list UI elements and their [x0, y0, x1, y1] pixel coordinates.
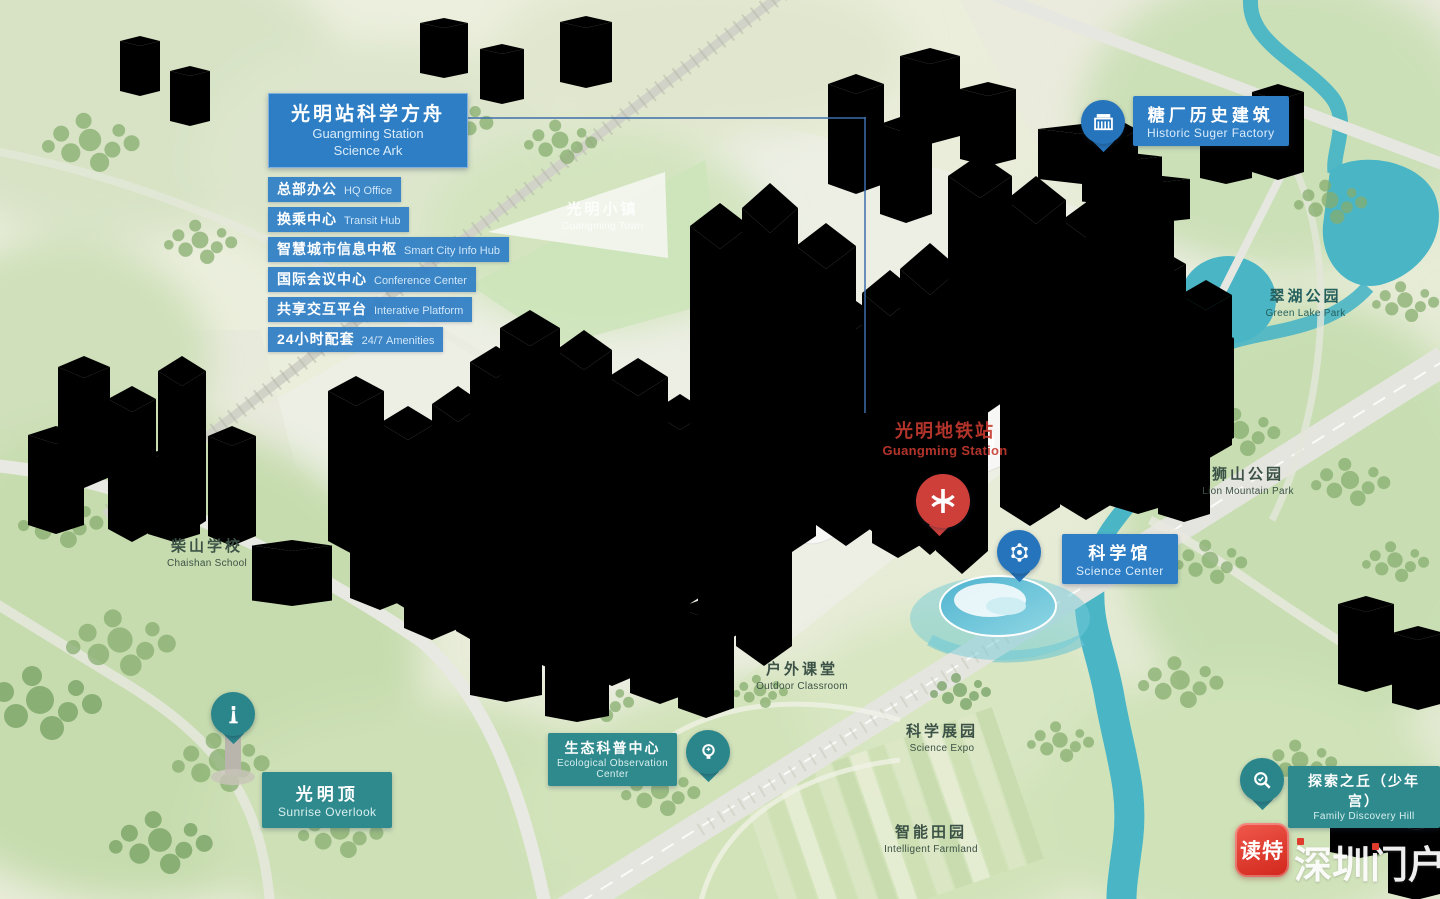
- legend-item-en: Conference Center: [374, 275, 467, 287]
- sugar-factory-pin: [1080, 100, 1126, 149]
- green-lake-park-text: 翠湖公园 Green Lake Park: [1238, 287, 1373, 320]
- shenzhen-portal-watermark: 深圳门户: [1294, 834, 1440, 889]
- eco-center-en2: Center: [557, 769, 668, 780]
- chaishan-school-zh: 柴山学校: [148, 537, 266, 557]
- legend-title-en2: Science Ark: [277, 143, 459, 160]
- dutenews-logo-text: 读特: [1239, 835, 1285, 865]
- science-expo-en: Science Expo: [888, 742, 996, 755]
- discovery-hill-label: 探索之丘（少年宫） Family Discovery Hill: [1288, 766, 1440, 828]
- sugar-factory-en: Historic Suger Factory: [1147, 126, 1275, 140]
- science-expo-zh: 科学展园: [888, 722, 996, 742]
- intelligent-farmland-en: Intelligent Farmland: [856, 843, 1006, 856]
- legend-item: 总部办公HQ Office: [268, 177, 401, 202]
- eco-center-label: 生态科普中心 Ecological Observation Center: [548, 733, 677, 786]
- legend-leader-horizontal: [451, 117, 866, 119]
- guangming-town-zh: 光明小镇: [540, 200, 665, 220]
- science-center-zh: 科学馆: [1076, 539, 1164, 564]
- masterplan-rendering: 光明站科学方舟 Guangming Station Science Ark 总部…: [0, 0, 1440, 899]
- legend-item-zh: 换乘中心: [277, 211, 337, 227]
- legend-title: 光明站科学方舟 Guangming Station Science Ark: [268, 93, 468, 168]
- legend-title-zh: 光明站科学方舟: [277, 99, 459, 126]
- chaishan-school-text: 柴山学校 Chaishan School: [148, 537, 266, 570]
- guangming-town-en: Guangming Town: [540, 220, 665, 233]
- science-center-en: Science Center: [1076, 564, 1164, 578]
- eco-center-zh: 生态科普中心: [557, 738, 668, 758]
- sunrise-overlook-en: Sunrise Overlook: [278, 805, 376, 819]
- discovery-hill-en: Family Discovery Hill: [1298, 811, 1430, 822]
- metro-icon: [925, 483, 961, 519]
- legend-item-en: 24/7 Amenities: [362, 335, 435, 347]
- intelligent-farmland-text: 智能田园 Intelligent Farmland: [856, 823, 1006, 856]
- tower-icon: [220, 701, 247, 728]
- lion-mountain-zh: 狮山公园: [1178, 465, 1318, 485]
- legend-item-en: Interative Platform: [374, 305, 463, 317]
- legend-item-zh: 总部办公: [277, 181, 337, 197]
- sunrise-overlook-pin: [210, 692, 256, 741]
- legend-item-en: Smart City Info Hub: [404, 245, 500, 257]
- science-center-pin-head: [997, 530, 1041, 574]
- dutenews-logo: 读特: [1235, 823, 1289, 877]
- sugar-factory-zh: 糖厂历史建筑: [1147, 101, 1275, 126]
- guangming-station-pin: [916, 474, 962, 533]
- legend-leader-vertical: [864, 117, 866, 413]
- discovery-hill-pin-head: [1240, 758, 1284, 802]
- science-center-pin: [996, 530, 1042, 579]
- legend-items: 总部办公HQ Office 换乘中心Transit Hub 智慧城市信息中枢Sm…: [268, 177, 509, 352]
- green-lake-zh: 翠湖公园: [1238, 287, 1373, 307]
- legend-item: 换乘中心Transit Hub: [268, 207, 409, 232]
- legend-item-en: HQ Office: [344, 185, 392, 197]
- sunrise-overlook-zh: 光明顶: [278, 780, 376, 805]
- bulb-icon: [695, 739, 722, 766]
- intelligent-farmland-zh: 智能田园: [856, 823, 1006, 843]
- watermark-red-accent: [1297, 838, 1304, 845]
- molecule-icon: [1006, 539, 1033, 566]
- legend-item-en: Transit Hub: [344, 215, 400, 227]
- legend-item-zh: 24小时配套: [277, 331, 355, 347]
- legend-item: 24小时配套24/7 Amenities: [268, 327, 443, 352]
- sunrise-overlook-label: 光明顶 Sunrise Overlook: [262, 772, 392, 828]
- lion-mountain-en: Lion Mountain Park: [1178, 485, 1318, 498]
- legend-item: 共享交互平台Interative Platform: [268, 297, 472, 322]
- outdoor-classroom-zh: 户外课堂: [742, 660, 862, 680]
- discovery-hill-zh: 探索之丘（少年宫）: [1298, 771, 1430, 811]
- legend: 光明站科学方舟 Guangming Station Science Ark 总部…: [268, 93, 509, 357]
- legend-item: 智慧城市信息中枢Smart City Info Hub: [268, 237, 509, 262]
- watermark-red-accent: [1372, 843, 1379, 850]
- guangming-station-zh: 光明地铁站: [860, 420, 1030, 443]
- green-lake-en: Green Lake Park: [1238, 307, 1373, 320]
- eco-center-pin-head: [686, 730, 730, 774]
- guangming-station-en: Guangming Station: [860, 443, 1030, 460]
- science-expo-text: 科学展园 Science Expo: [888, 722, 996, 755]
- legend-item-zh: 智慧城市信息中枢: [277, 241, 397, 257]
- legend-title-en1: Guangming Station: [277, 126, 459, 143]
- outdoor-classroom-text: 户外课堂 Outdoor Classroom: [742, 660, 862, 693]
- outdoor-classroom-en: Outdoor Classroom: [742, 680, 862, 693]
- chaishan-school-en: Chaishan School: [148, 557, 266, 570]
- eco-center-en1: Ecological Observation: [557, 758, 668, 769]
- eco-center-pin: [685, 730, 731, 779]
- guangming-town-text: 光明小镇 Guangming Town: [540, 200, 665, 233]
- magnifier-icon: [1249, 767, 1276, 794]
- discovery-hill-pin: [1239, 758, 1285, 807]
- sugar-factory-label: 糖厂历史建筑 Historic Suger Factory: [1133, 96, 1289, 146]
- science-center-label: 科学馆 Science Center: [1062, 534, 1178, 584]
- guangming-station-pin-head: [916, 474, 970, 528]
- legend-item-zh: 国际会议中心: [277, 271, 367, 287]
- sunrise-overlook-pin-head: [211, 692, 255, 736]
- lion-mountain-park-text: 狮山公园 Lion Mountain Park: [1178, 465, 1318, 498]
- sugar-factory-pin-head: [1081, 100, 1125, 144]
- legend-item: 国际会议中心Conference Center: [268, 267, 476, 292]
- legend-item-zh: 共享交互平台: [277, 301, 367, 317]
- guangming-station-text: 光明地铁站 Guangming Station: [860, 420, 1030, 460]
- factory-icon: [1090, 109, 1117, 136]
